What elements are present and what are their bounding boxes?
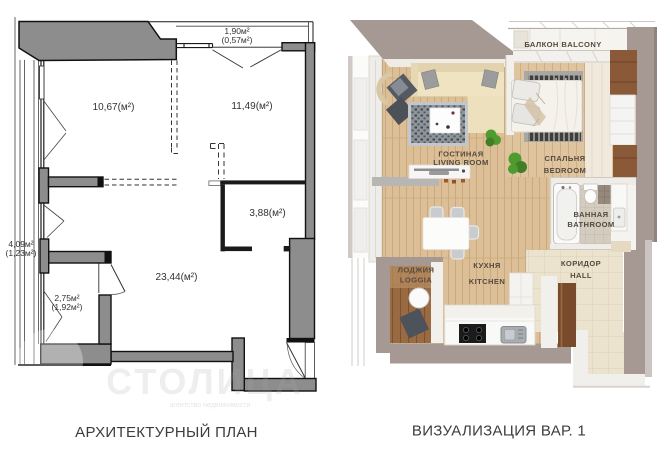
svg-text:11,49(м²): 11,49(м²) xyxy=(231,101,272,112)
svg-text:ЛОДЖИЯ: ЛОДЖИЯ xyxy=(398,266,435,275)
svg-text:ВИЗУАЛИЗАЦИЯ ВАР. 1: ВИЗУАЛИЗАЦИЯ ВАР. 1 xyxy=(412,423,586,440)
svg-text:(1,92м²): (1,92м²) xyxy=(52,302,83,312)
svg-text:23,44(м²): 23,44(м²) xyxy=(156,272,198,283)
svg-text:KITCHEN: KITCHEN xyxy=(469,277,506,286)
svg-text:СПАЛЬНЯ: СПАЛЬНЯ xyxy=(544,154,585,163)
svg-text:СТОЛИЦА: СТОЛИЦА xyxy=(106,361,304,402)
svg-text:BEDROOM: BEDROOM xyxy=(544,166,586,175)
svg-text:3,88(м²): 3,88(м²) xyxy=(249,208,285,219)
svg-text:АРХИТЕКТУРНЫЙ ПЛАН: АРХИТЕКТУРНЫЙ ПЛАН xyxy=(75,423,258,441)
svg-text:ВАННАЯ: ВАННАЯ xyxy=(574,210,609,219)
svg-text:КОРИДОР: КОРИДОР xyxy=(561,259,601,268)
svg-text:LOGGIA: LOGGIA xyxy=(400,276,432,285)
svg-text:(1,23м²): (1,23м²) xyxy=(6,248,37,258)
svg-text:LIVING ROOM: LIVING ROOM xyxy=(433,158,488,167)
svg-text:(0,57м²): (0,57м²) xyxy=(222,35,253,45)
svg-text:HALL: HALL xyxy=(570,271,592,280)
svg-text:10,67(м²): 10,67(м²) xyxy=(93,102,135,113)
svg-text:КУХНЯ: КУХНЯ xyxy=(473,261,501,270)
svg-text:БАЛКОН BALCONY: БАЛКОН BALCONY xyxy=(524,40,601,49)
svg-text:BATHROOM: BATHROOM xyxy=(567,220,614,229)
svg-text:агентство недвижимости: агентство недвижимости xyxy=(170,402,251,409)
